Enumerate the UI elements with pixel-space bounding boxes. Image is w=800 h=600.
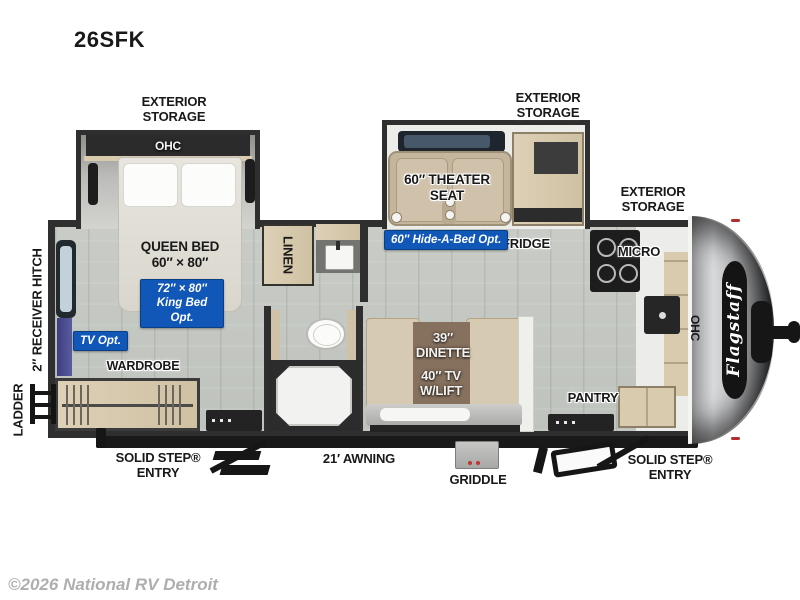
tv-lift-label: 40″ TV W/LIFT (420, 368, 462, 398)
tv-panel (57, 318, 72, 376)
step-right-bracket (533, 446, 548, 473)
bed-ohc-label: OHC (155, 140, 181, 154)
king-bed-option-badge: 72″ × 80″ King Bed Opt. (140, 279, 224, 328)
fridge-label: FRIDGE (502, 236, 550, 251)
pillow-right (181, 163, 236, 207)
ladder-rung-1 (34, 391, 52, 395)
bath-wall-top (360, 224, 368, 302)
exterior-storage-label-bed: EXTERIOR STORAGE (142, 94, 207, 124)
tv-lift-base (370, 425, 520, 432)
ladder-rung-2 (34, 403, 52, 407)
entry-well-left-dots (212, 419, 232, 422)
wardrobe-hangers-left (66, 385, 92, 425)
linen-label: LINEN (280, 236, 295, 274)
shower-pan (276, 366, 352, 426)
awning-label: 21′ AWNING (323, 451, 395, 466)
pillow-left (123, 163, 178, 207)
micro-label: MICRO (618, 244, 660, 259)
griddle-label: GRIDDLE (449, 472, 506, 487)
pantry-cabinet (618, 386, 676, 428)
dinette-label: 39″ DINETTE (416, 330, 470, 360)
receiver-hitch-label: 2″ RECEIVER HITCH (29, 248, 44, 371)
tv-option-badge: TV Opt. (73, 331, 128, 351)
theater-window-glass (404, 135, 490, 148)
ladder-rung-3 (34, 415, 52, 419)
solid-step-label-left: SOLID STEP® ENTRY (116, 450, 201, 480)
bath-halfwall-right (347, 310, 356, 362)
queen-bed-label: QUEEN BED 60″ × 80″ (141, 239, 219, 270)
theater-seat-label: 60″ THEATER SEAT (404, 172, 490, 203)
griddle-knob-2 (476, 461, 480, 465)
burner-4 (619, 264, 638, 283)
burner-1 (597, 238, 616, 257)
bath-faucet (336, 241, 340, 250)
theater-cupholder-2 (445, 210, 455, 220)
rear-bumper (96, 428, 106, 448)
entry-well-right-dots (556, 421, 576, 424)
kitchen-faucet (659, 312, 666, 319)
ladder-label: LADDER (10, 384, 25, 437)
clearance-light-bottom (731, 437, 740, 440)
bed-slideout-window-right (245, 159, 255, 203)
griddle-knob-1 (468, 461, 472, 465)
floorplan-page: 26SFK ©2026 National RV Detroit OHC QUEE… (0, 0, 800, 600)
bed-slideout-window-left (88, 163, 98, 205)
wardrobe-label: WARDROBE (107, 359, 180, 374)
step-left-tread-2 (220, 465, 271, 475)
clearance-light-top (731, 219, 740, 222)
fridge-interior (534, 142, 578, 174)
kitchen-ohc-label: OHC (687, 315, 701, 341)
wardrobe-hangers-right (158, 385, 184, 425)
pantry-label: PANTRY (568, 390, 619, 405)
vanity-top (316, 224, 362, 240)
page-title: 26SFK (74, 27, 145, 53)
burner-3 (597, 264, 616, 283)
watermark: ©2026 National RV Detroit (8, 575, 218, 595)
tv-lift-screen (380, 408, 470, 421)
theater-cupholder-right (500, 212, 511, 223)
toilet-seat (313, 324, 341, 346)
exterior-storage-label-theater: EXTERIOR STORAGE (516, 90, 581, 120)
brand-logo: Flagstaff (724, 283, 744, 377)
solid-step-label-right: SOLID STEP® ENTRY (628, 452, 713, 482)
fridge-front (514, 208, 582, 222)
exterior-storage-label-front: EXTERIOR STORAGE (621, 184, 686, 214)
hide-a-bed-badge: 60″ Hide-A-Bed Opt. (384, 230, 508, 250)
hitch-knob (788, 321, 800, 343)
theater-cupholder-left (391, 212, 402, 223)
bedroom-left-window-glass (60, 246, 72, 312)
bath-halfwall-left (271, 310, 280, 362)
